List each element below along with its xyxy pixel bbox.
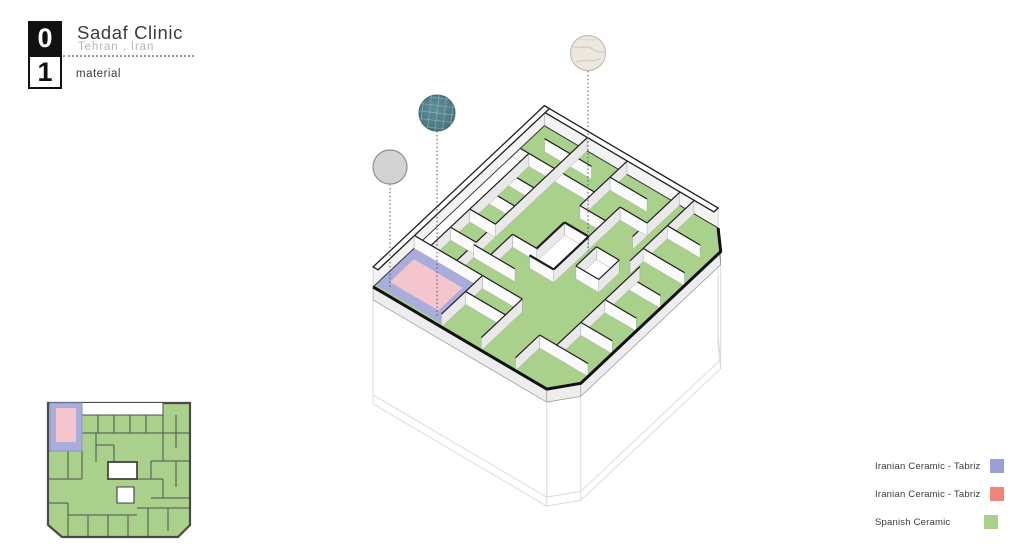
teal-tile-material-circle <box>412 88 461 137</box>
legend-swatch-salmon <box>990 487 1004 501</box>
legend-swatch-green <box>984 515 998 529</box>
floor-plan-thumbnail <box>48 403 190 537</box>
legend-row: Iranian Ceramic - Tabriz <box>875 487 998 501</box>
gray-material-circle <box>373 150 407 184</box>
drawing-layer <box>0 0 1024 553</box>
legend-swatch-purple <box>990 459 1004 473</box>
legend-label: Iranian Ceramic - Tabriz <box>875 461 980 472</box>
legend-row: Iranian Ceramic - Tabriz <box>875 459 998 473</box>
legend-row: Spanish Ceramic <box>875 515 998 529</box>
legend-label: Spanish Ceramic <box>875 517 974 528</box>
presentation-board: 0 1 Sadaf Clinic Tehran , Iran material … <box>0 0 1024 553</box>
marble-material-circle <box>571 36 607 71</box>
legend-label: Iranian Ceramic - Tabriz <box>875 489 980 500</box>
material-legend: Iranian Ceramic - Tabriz Iranian Ceramic… <box>875 459 998 529</box>
thumbnail-highlight-room-pink <box>56 408 76 442</box>
